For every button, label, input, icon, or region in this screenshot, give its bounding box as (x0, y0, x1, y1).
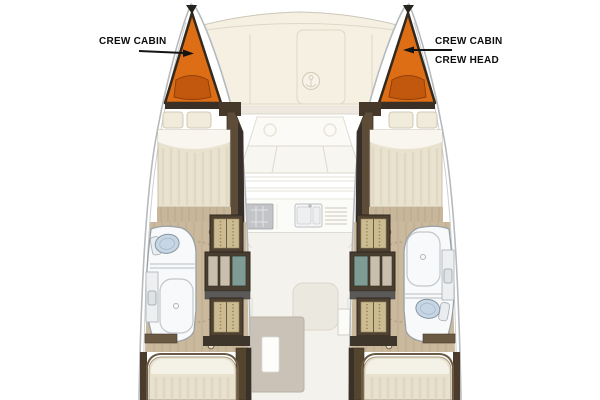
starboard-crew-cabin-label: CREW CABIN (435, 36, 503, 47)
port-crew-cabin-label: CREW CABIN (99, 36, 167, 47)
foredeck (203, 12, 397, 108)
basin (444, 269, 452, 283)
floor-plan-drawing (0, 0, 600, 400)
anchor-locker-icon (303, 73, 320, 90)
catamaran-deck-plan: CREW CABIN CREW CABIN CREW HEAD (0, 0, 600, 400)
basin (148, 291, 156, 305)
starboard-crew-head-label: CREW HEAD (435, 55, 499, 66)
